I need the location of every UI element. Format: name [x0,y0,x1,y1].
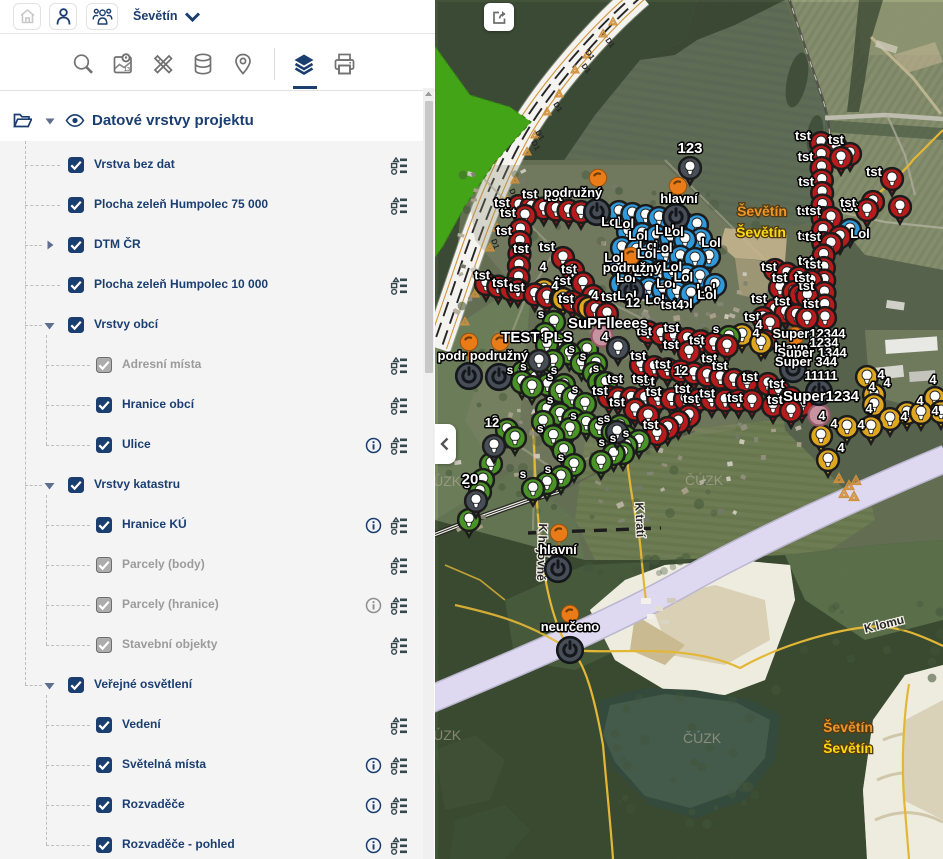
svg-text:4: 4 [837,440,845,455]
svg-text:4: 4 [539,259,547,274]
svg-text:podružný: podružný [603,260,662,275]
svg-text:podr: podr [438,348,467,363]
svg-text:s: s [547,392,554,406]
svg-text:4: 4 [931,403,939,418]
svg-text:tst: tst [803,296,820,311]
svg-text:tst: tst [539,239,556,254]
svg-text:tst: tst [828,132,845,147]
svg-text:4: 4 [830,416,838,431]
svg-text:tst: tst [805,229,822,244]
svg-text:s: s [507,363,514,377]
svg-text:tst: tst [474,268,491,283]
svg-text:Lol: Lol [701,235,721,250]
svg-text:tst: tst [742,369,759,384]
svg-text:tst: tst [607,371,624,386]
svg-text:tst: tst [798,149,815,164]
svg-text:Lol: Lol [850,226,870,241]
svg-text:TEST PLS: TEST PLS [501,329,573,346]
svg-text:tst: tst [522,186,539,201]
svg-text:s: s [558,450,565,464]
svg-text:podružný: podružný [544,185,603,200]
svg-text:4: 4 [883,375,891,390]
svg-text:tst: tst [840,195,857,210]
svg-text:Lol: Lol [637,246,657,261]
svg-text:4: 4 [818,408,826,423]
svg-text:12: 12 [674,363,688,378]
svg-text:11111: 11111 [804,368,837,383]
svg-text:s: s [551,363,558,377]
svg-text:12: 12 [485,415,499,430]
svg-text:4: 4 [868,379,876,394]
svg-text:s: s [623,426,630,440]
svg-text:tst: tst [500,205,517,220]
svg-text:tst4: tst4 [660,297,684,312]
svg-text:4: 4 [755,317,763,332]
svg-text:4: 4 [591,288,599,303]
svg-text:4: 4 [929,372,937,387]
svg-text:tst: tst [699,385,716,400]
svg-text:s: s [538,307,545,321]
svg-text:4: 4 [900,409,908,424]
svg-text:tst: tst [558,291,575,306]
svg-text:tst: tst [496,223,513,238]
svg-text:tst: tst [643,417,660,432]
svg-text:tst: tst [683,391,700,406]
svg-text:12: 12 [626,295,640,310]
svg-text:tst: tst [689,333,706,348]
svg-text:tst: tst [805,256,822,271]
svg-text:s: s [610,431,617,445]
svg-text:hlavní: hlavní [539,542,577,557]
svg-text:20: 20 [462,471,479,488]
svg-text:SuPFlleees: SuPFlleees [568,315,648,332]
svg-text:123: 123 [677,140,702,157]
svg-text:s: s [572,382,579,396]
svg-text:4: 4 [857,417,865,432]
svg-text:tst: tst [805,203,822,218]
svg-text:Lol: Lol [697,287,717,302]
svg-text:tst: tst [492,275,509,290]
svg-text:tst: tst [509,279,526,294]
svg-text:s: s [713,322,720,336]
svg-text:tst: tst [646,384,663,399]
svg-text:Lol: Lol [674,269,694,284]
svg-text:tst: tst [513,241,530,256]
svg-text:s: s [598,435,605,449]
svg-text:tst: tst [794,270,811,285]
svg-text:Lol: Lol [664,224,684,239]
svg-text:tst: tst [663,337,680,352]
svg-text:Super1234: Super1234 [783,388,860,405]
svg-text:tst: tst [601,289,618,304]
svg-text:s: s [593,361,600,375]
svg-text:13: 13 [124,67,130,73]
svg-text:tst: tst [727,390,744,405]
svg-text:hlavní: hlavní [660,191,698,206]
svg-text:tst: tst [632,371,649,386]
svg-text:s: s [570,408,577,422]
svg-text:tst: tst [795,128,812,143]
svg-text:podružný: podružný [470,348,529,363]
svg-text:tst: tst [630,348,647,363]
svg-text:tst: tst [774,293,791,308]
svg-text:s: s [545,462,552,476]
svg-text:tst: tst [609,395,626,410]
svg-text:tst: tst [798,174,815,189]
svg-text:tst: tst [866,164,883,179]
svg-text:tst: tst [712,358,729,373]
svg-text:s: s [604,411,611,425]
svg-text:4: 4 [551,278,559,293]
svg-text:tst: tst [751,291,768,306]
svg-text:tst: tst [767,392,784,407]
svg-text:tst: tst [664,320,681,335]
svg-text:s: s [580,349,587,363]
svg-text:tst: tst [655,356,672,371]
svg-text:4: 4 [865,401,873,416]
svg-text:neurčeno: neurčeno [541,619,600,634]
svg-text:s: s [537,421,544,435]
svg-text:tst: tst [772,270,789,285]
svg-text:Super 344: Super 344 [775,354,838,369]
svg-text:s: s [520,467,527,481]
svg-text:4: 4 [916,393,924,408]
